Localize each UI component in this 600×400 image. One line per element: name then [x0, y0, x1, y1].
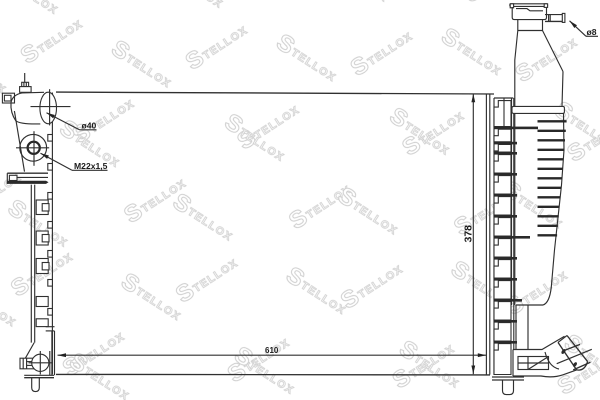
svg-text:610: 610 — [265, 346, 279, 355]
svg-text:ø40: ø40 — [82, 120, 97, 130]
svg-text:M22x1,5: M22x1,5 — [74, 161, 108, 171]
svg-text:ø8: ø8 — [587, 27, 597, 37]
svg-text:378: 378 — [463, 225, 475, 243]
